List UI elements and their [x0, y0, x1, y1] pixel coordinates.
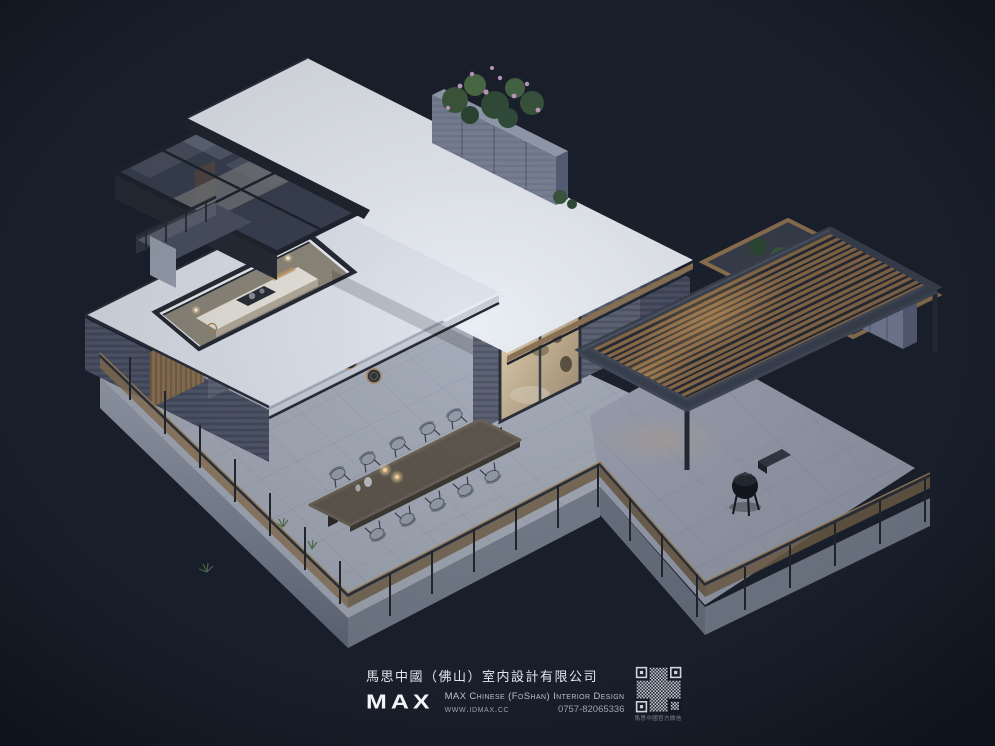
website: www.idmax.cc — [445, 704, 510, 715]
phone: 0757-82065336 — [558, 704, 625, 715]
qr-code — [635, 666, 682, 713]
poster-canvas: 馬思中國（佛山）室内設計有限公司 MAX MAX Chinese (FoShan… — [0, 0, 995, 746]
qr-caption: 馬思中國官方微信 — [635, 714, 682, 722]
footer: 馬思中國（佛山）室内設計有限公司 MAX MAX Chinese (FoShan… — [366, 666, 682, 722]
max-logo: MAX — [366, 693, 434, 713]
vignette — [0, 0, 995, 746]
qr-block: 馬思中國官方微信 — [635, 666, 682, 722]
footer-text-block: 馬思中國（佛山）室内設計有限公司 MAX MAX Chinese (FoShan… — [366, 666, 625, 715]
house-render-illustration — [0, 0, 995, 746]
company-name-cn: 馬思中國（佛山）室内設計有限公司 — [366, 666, 625, 685]
company-name-en: MAX Chinese (FoShan) Interior Design — [445, 691, 625, 702]
